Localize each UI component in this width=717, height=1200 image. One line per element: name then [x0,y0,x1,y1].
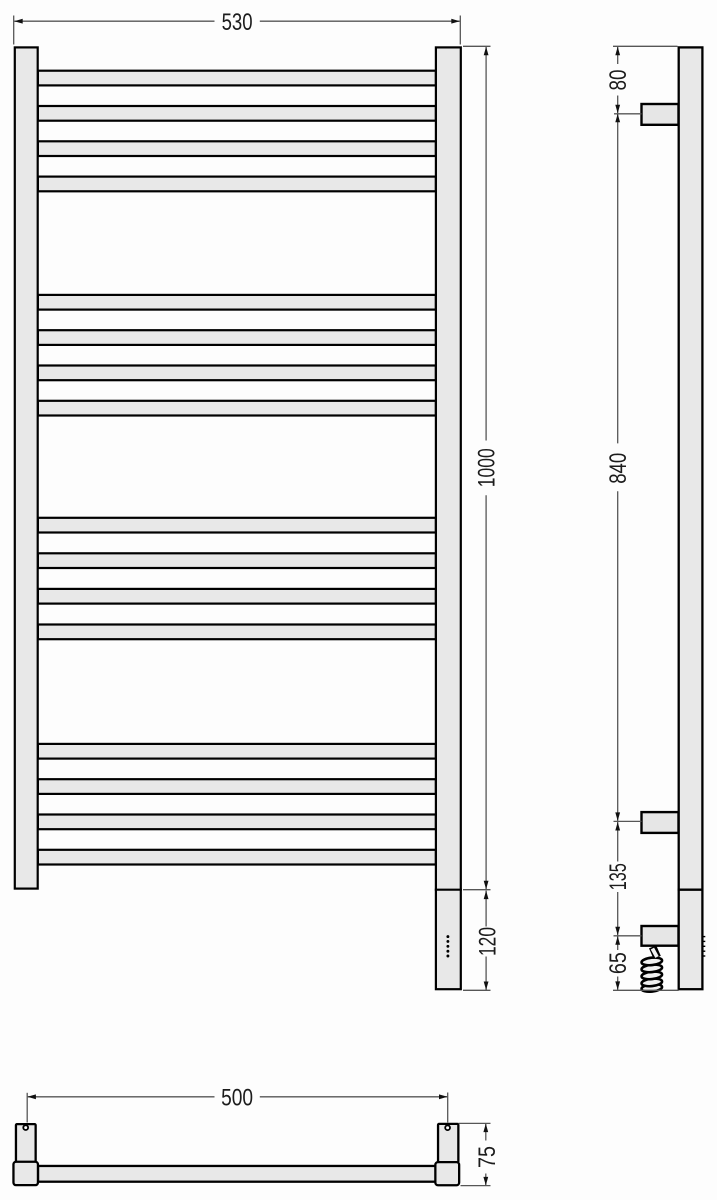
svg-text:135: 135 [605,863,632,890]
svg-text:65: 65 [605,952,632,974]
svg-text:120: 120 [475,927,502,956]
svg-text:75: 75 [474,1146,501,1168]
svg-text:80: 80 [605,70,632,91]
svg-text:530: 530 [222,9,253,36]
svg-text:1000: 1000 [473,448,500,487]
svg-text:500: 500 [221,1085,253,1112]
svg-text:840: 840 [605,453,632,484]
